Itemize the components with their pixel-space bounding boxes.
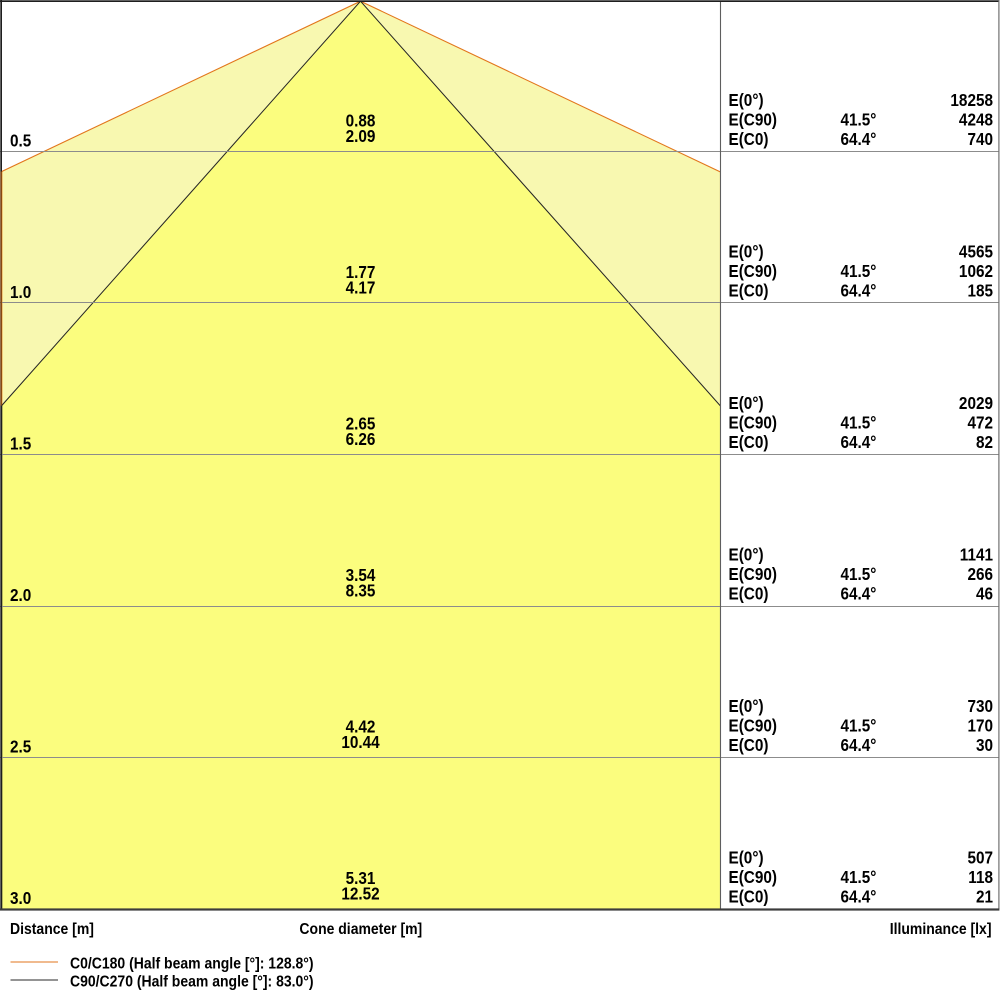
svg-text:64.4°: 64.4° (841, 585, 877, 604)
svg-text:E(C90): E(C90) (729, 414, 777, 433)
svg-text:64.4°: 64.4° (841, 282, 877, 301)
svg-text:E(0°): E(0°) (729, 394, 764, 413)
svg-text:2.09: 2.09 (346, 127, 376, 146)
svg-text:740: 740 (967, 130, 993, 149)
svg-text:41.5°: 41.5° (841, 414, 877, 433)
svg-text:E(C0): E(C0) (729, 585, 769, 604)
svg-text:C0/C180 (Half beam angle [°]:: C0/C180 (Half beam angle [°]: 128.8°) (70, 955, 314, 973)
svg-text:E(0°): E(0°) (729, 243, 764, 262)
svg-text:1141: 1141 (960, 546, 993, 565)
svg-text:3.0: 3.0 (10, 889, 31, 908)
svg-text:E(C90): E(C90) (729, 565, 777, 584)
svg-text:Distance [m]: Distance [m] (10, 920, 94, 938)
svg-text:E(0°): E(0°) (729, 91, 764, 110)
svg-text:41.5°: 41.5° (841, 111, 877, 130)
svg-text:1.0: 1.0 (10, 283, 31, 302)
svg-text:E(0°): E(0°) (729, 697, 764, 716)
svg-text:64.4°: 64.4° (841, 736, 877, 755)
svg-text:6.26: 6.26 (346, 430, 376, 449)
svg-text:E(C0): E(C0) (729, 736, 769, 755)
svg-text:E(0°): E(0°) (729, 546, 764, 565)
svg-text:1062: 1062 (959, 262, 993, 281)
svg-text:730: 730 (967, 697, 993, 716)
svg-text:Cone diameter [m]: Cone diameter [m] (299, 920, 422, 938)
svg-text:2.0: 2.0 (10, 586, 31, 605)
svg-text:170: 170 (967, 717, 993, 736)
svg-text:64.4°: 64.4° (841, 130, 877, 149)
svg-text:1.5: 1.5 (10, 434, 31, 453)
svg-text:64.4°: 64.4° (841, 888, 877, 907)
svg-text:118: 118 (968, 868, 993, 887)
svg-text:C90/C270 (Half beam angle [°]:: C90/C270 (Half beam angle [°]: 83.0°) (70, 973, 314, 991)
svg-text:21: 21 (976, 888, 993, 907)
svg-text:82: 82 (976, 433, 993, 452)
svg-text:2.5: 2.5 (10, 737, 31, 756)
svg-text:64.4°: 64.4° (841, 433, 877, 452)
svg-text:30: 30 (976, 736, 993, 755)
svg-text:12.52: 12.52 (341, 884, 379, 903)
svg-text:507: 507 (967, 849, 993, 868)
svg-text:46: 46 (976, 585, 993, 604)
svg-text:0.5: 0.5 (10, 131, 31, 150)
svg-text:E(C0): E(C0) (729, 433, 769, 452)
svg-text:18258: 18258 (950, 91, 993, 110)
svg-text:10.44: 10.44 (341, 733, 380, 752)
svg-text:266: 266 (967, 565, 993, 584)
svg-text:E(C90): E(C90) (729, 262, 777, 281)
svg-text:41.5°: 41.5° (841, 565, 877, 584)
svg-text:4248: 4248 (959, 111, 993, 130)
svg-text:E(C0): E(C0) (729, 282, 769, 301)
svg-text:Illuminance [lx]: Illuminance [lx] (890, 920, 992, 938)
svg-text:472: 472 (967, 414, 993, 433)
svg-text:E(0°): E(0°) (729, 849, 764, 868)
svg-text:41.5°: 41.5° (841, 262, 877, 281)
svg-text:41.5°: 41.5° (841, 868, 877, 887)
svg-text:2029: 2029 (959, 394, 993, 413)
svg-text:185: 185 (967, 282, 993, 301)
svg-text:4.17: 4.17 (346, 278, 376, 297)
svg-text:E(C0): E(C0) (729, 888, 769, 907)
svg-text:E(C90): E(C90) (729, 111, 777, 130)
svg-text:E(C90): E(C90) (729, 717, 777, 736)
svg-text:E(C0): E(C0) (729, 130, 769, 149)
svg-text:8.35: 8.35 (346, 581, 376, 600)
svg-text:41.5°: 41.5° (841, 717, 877, 736)
svg-text:4565: 4565 (959, 243, 993, 262)
svg-text:E(C90): E(C90) (729, 868, 777, 887)
